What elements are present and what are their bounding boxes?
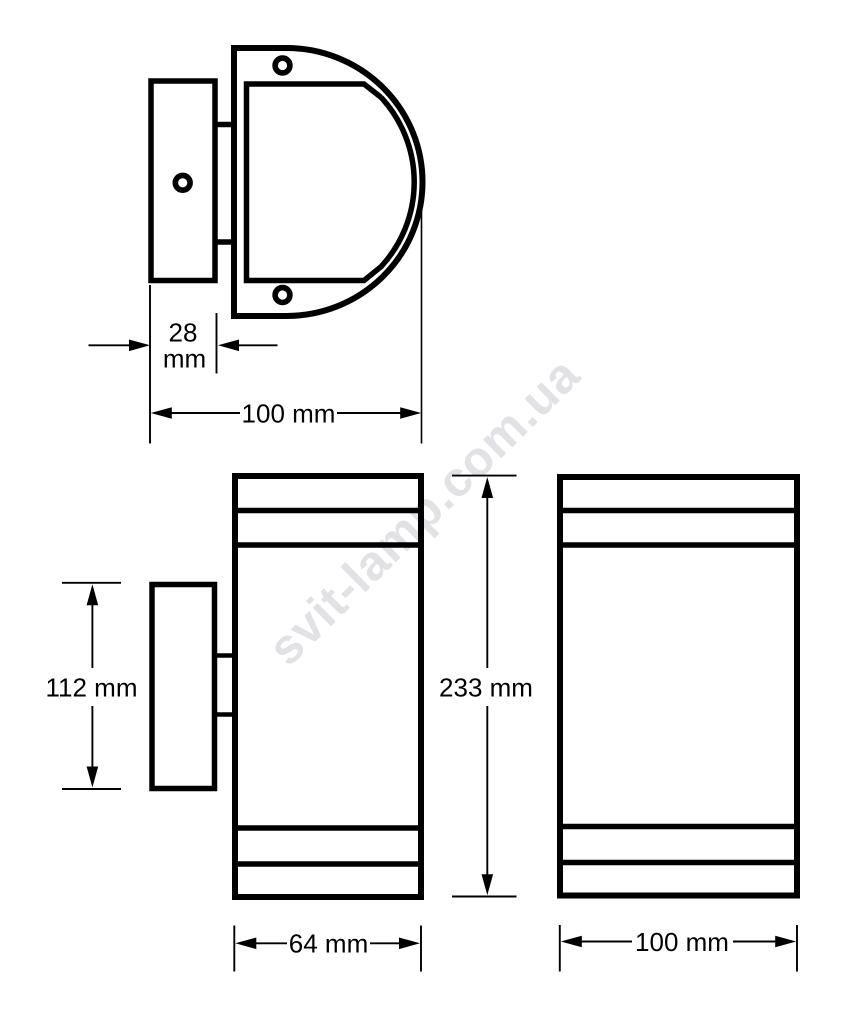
svg-text:233 mm: 233 mm [439, 673, 533, 703]
svg-text:100 mm: 100 mm [242, 399, 336, 429]
svg-text:mm: mm [163, 344, 206, 374]
svg-text:112 mm: 112 mm [46, 673, 138, 703]
svg-text:100 mm: 100 mm [635, 927, 729, 957]
svg-text:64 mm: 64 mm [289, 929, 368, 959]
